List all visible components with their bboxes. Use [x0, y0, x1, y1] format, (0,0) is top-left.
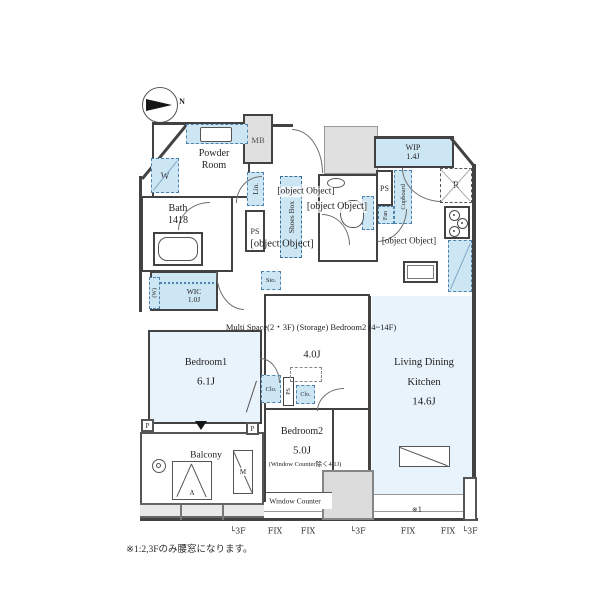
hall-label: [object Object] [250, 239, 313, 252]
multi-space-size: 4.0J [303, 350, 320, 363]
bathtub [153, 232, 203, 266]
bedroom1-size: 6.1J [197, 375, 215, 388]
window-spec-6: └3F [462, 527, 477, 536]
bathtub-inner [158, 237, 198, 261]
closet-b: Clo. [296, 385, 315, 404]
ldk-label: Living Dining Kitchen [394, 353, 454, 393]
cupboard-label: Cupboard [400, 184, 407, 210]
window-spec-1: FIX [268, 527, 282, 536]
pipe-space-kitchen: PS [376, 170, 393, 206]
island-counter-inner [407, 265, 434, 279]
compass-north-label: N [179, 97, 185, 107]
toilet-label: [object Object] [307, 201, 367, 213]
wall-left-upper [139, 176, 142, 312]
storage-sto: Sto. [261, 271, 281, 290]
closet-a-label: Clo. [265, 386, 276, 393]
window-spec-2: FIX [301, 527, 315, 536]
ref-mark: ※1 [412, 506, 422, 514]
bedroom2-label: Bedroom2 [281, 426, 323, 438]
wall-top-mb [273, 124, 293, 127]
balcony-label: Balcony [190, 450, 222, 461]
sto-label: Sto. [266, 277, 276, 284]
window-spec-3: └3F [350, 527, 365, 536]
meter-label: M [239, 468, 247, 476]
ps-entrance-label: PS [251, 227, 260, 236]
ps-kitchen-label: PS [380, 184, 389, 193]
multi-space-label: Multi Space(2・3F) (Storage) Bedroom2 (4~… [226, 322, 396, 332]
wic-window-label: (W) [152, 288, 158, 298]
pillar-left: P [141, 419, 154, 432]
floor-plan: N W MB Lin. PS Shoes Box Sto. [0, 0, 606, 601]
bedroom2-size: 5.0J [293, 444, 311, 457]
kitchen-island-counter [403, 261, 438, 283]
mb-label: MB [251, 135, 264, 145]
desk-outline-dashed [290, 367, 322, 382]
pillar-b-label: P [251, 425, 255, 433]
powder-room-label: Powder Room [199, 148, 230, 172]
wic-label: WIC 1.0J [187, 288, 202, 305]
kitchen-label: [object Object] [382, 236, 436, 247]
window-spec-4: FIX [401, 527, 415, 536]
hanger-pipe [160, 282, 214, 284]
closet-b-label: Clo. [300, 392, 310, 398]
footnote: ※1:2,3Fのみ腰窓になります。 [126, 541, 253, 555]
bedroom2-note: (Window Counter除く4.1J) [269, 461, 342, 469]
bedroom1-label: Bedroom1 [185, 357, 227, 369]
window-spec-5: FIX [441, 527, 455, 536]
entrance-porch [324, 126, 378, 174]
drain-circle-icon [152, 459, 166, 473]
entrance-label: [object Object] [277, 186, 334, 197]
window-spec-0: └3F [230, 527, 245, 536]
vent-triangle-icon [195, 421, 207, 430]
compass-arrow [146, 99, 172, 111]
stove [444, 206, 470, 239]
sink-basin [200, 127, 232, 142]
wic-room [150, 271, 218, 311]
bath-label: Bath 1418 [168, 203, 188, 227]
ps-multi-label: PS [286, 388, 292, 395]
wall-bottom [140, 518, 478, 521]
door-arc-entrance [292, 129, 323, 173]
wip-label: WIP 1.4J [406, 143, 421, 161]
stove-burner-icon [449, 226, 460, 237]
window-counter-label: Window Counter [269, 497, 321, 506]
ldk-size: 14.6J [412, 395, 436, 408]
compass-icon [142, 87, 178, 123]
corner-post [463, 477, 477, 521]
wic-window-mark: (W) [149, 277, 160, 309]
door-arc-hall-bedrooms [216, 272, 244, 310]
shoes-box-label: Shoes Box [287, 201, 296, 233]
pillar-right: P [246, 422, 259, 435]
pillar-a-label: P [146, 422, 150, 430]
ac-unit-label: A [189, 489, 194, 497]
balcony-railing [140, 503, 264, 518]
wall-right [472, 164, 476, 520]
